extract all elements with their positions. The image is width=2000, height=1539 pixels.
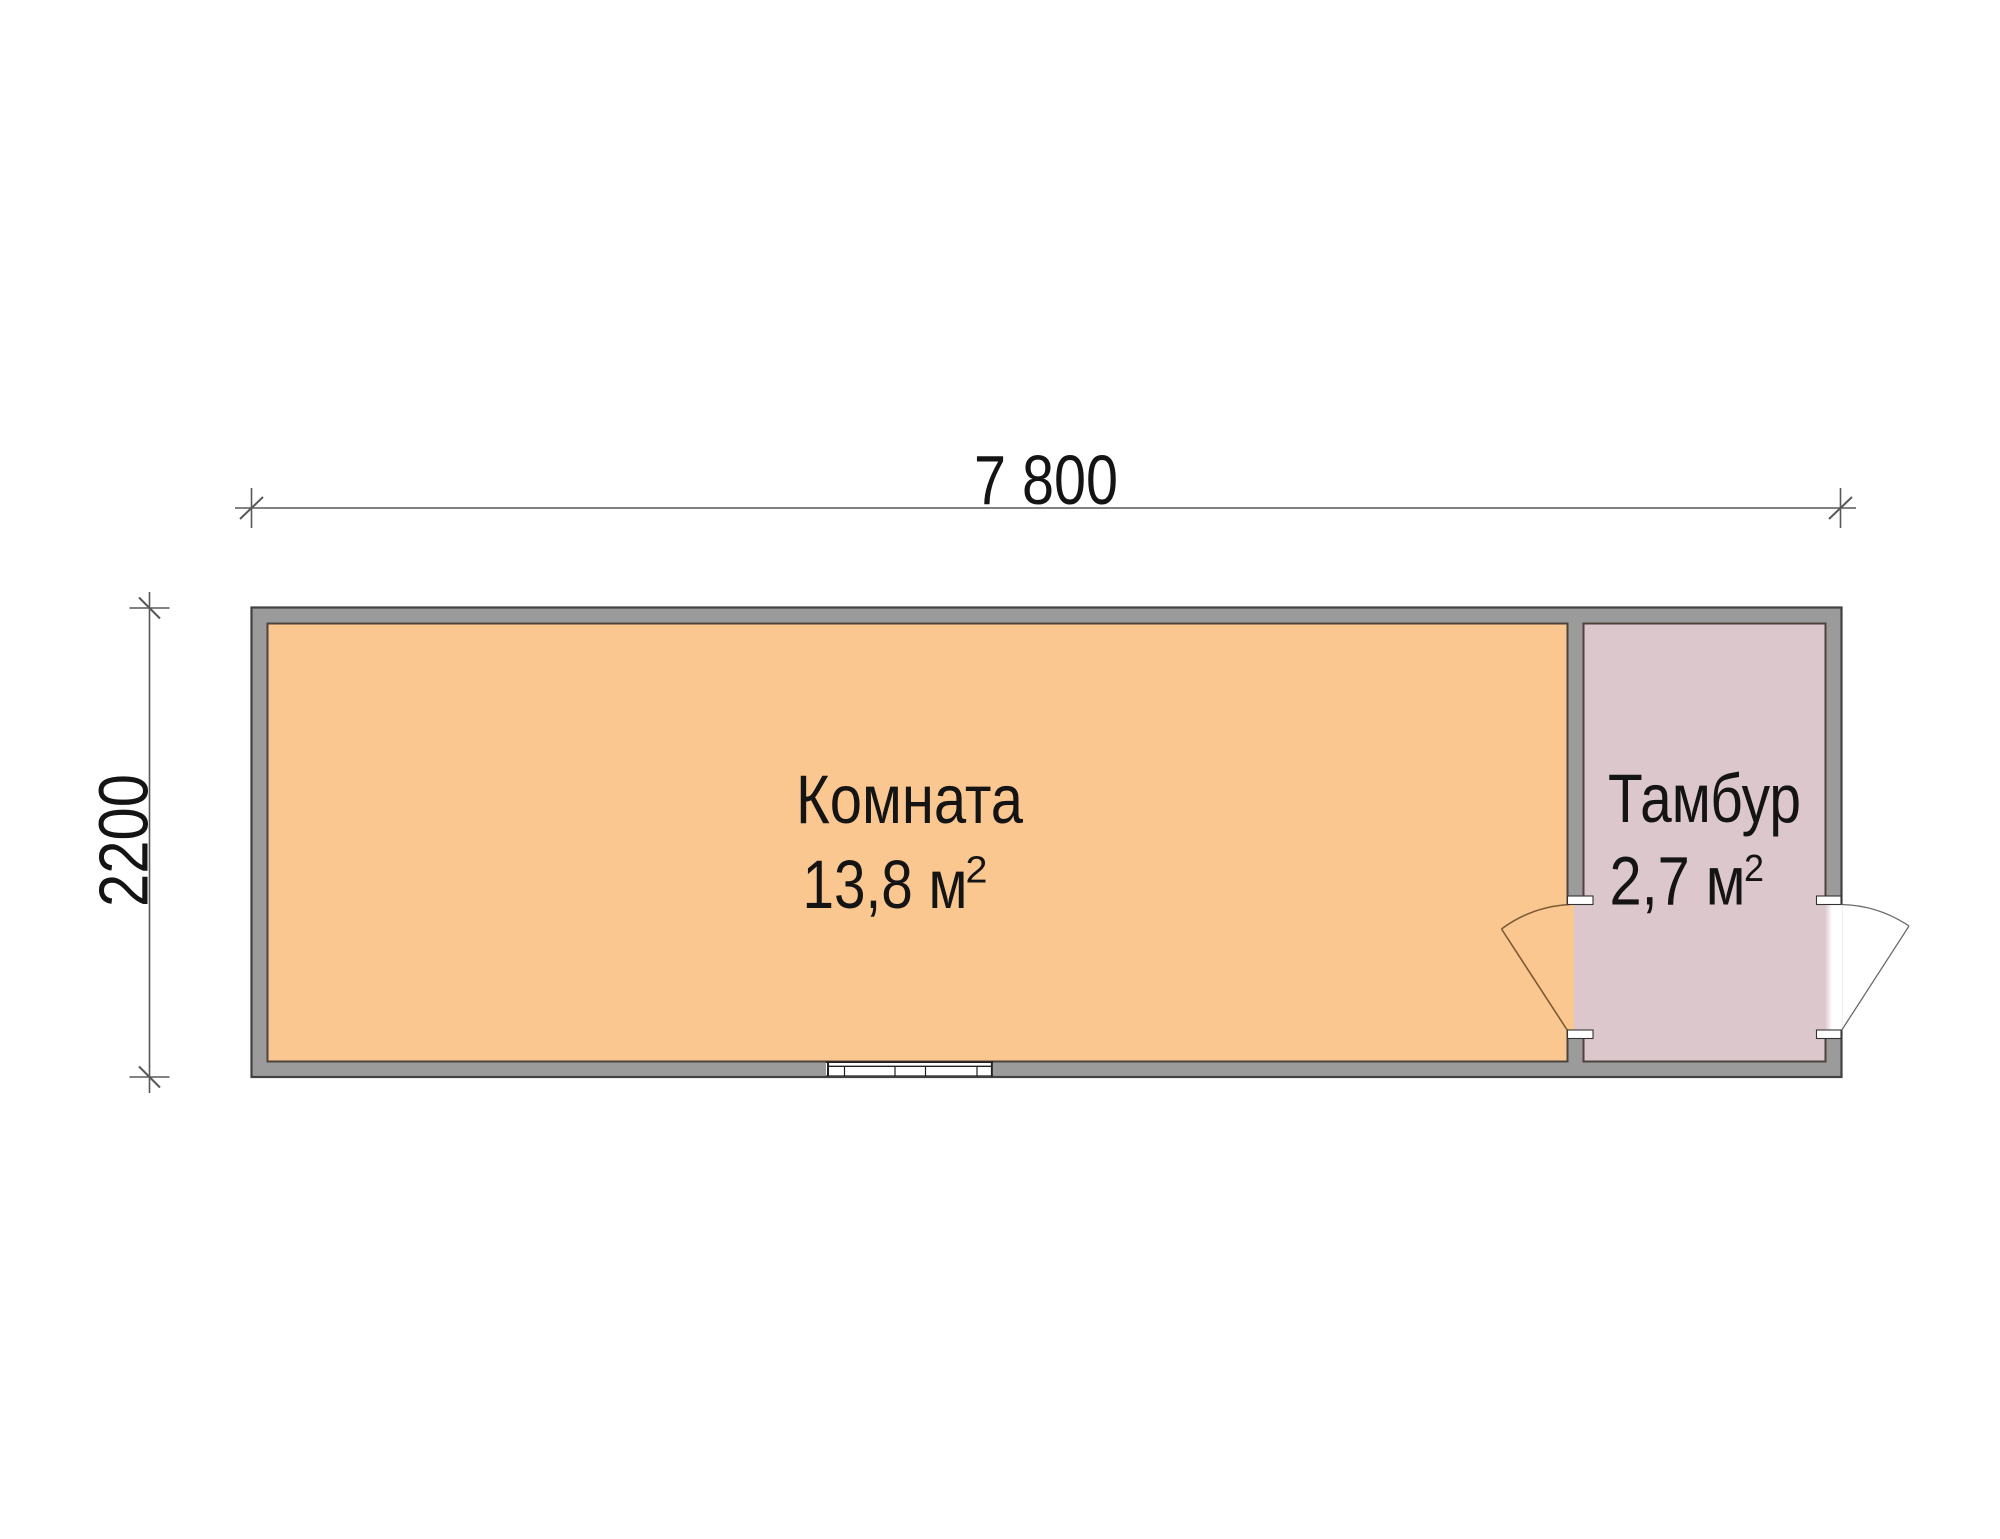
svg-text:7 800: 7 800 (974, 441, 1118, 519)
svg-text:Тамбур: Тамбур (1608, 760, 1801, 837)
svg-text:2: 2 (966, 850, 988, 892)
svg-text:2,7 м: 2,7 м (1610, 843, 1746, 920)
svg-text:2: 2 (1744, 848, 1764, 890)
svg-text:2200: 2200 (85, 774, 163, 907)
svg-text:Комната: Комната (796, 761, 1024, 838)
svg-text:13,8 м: 13,8 м (803, 846, 968, 923)
